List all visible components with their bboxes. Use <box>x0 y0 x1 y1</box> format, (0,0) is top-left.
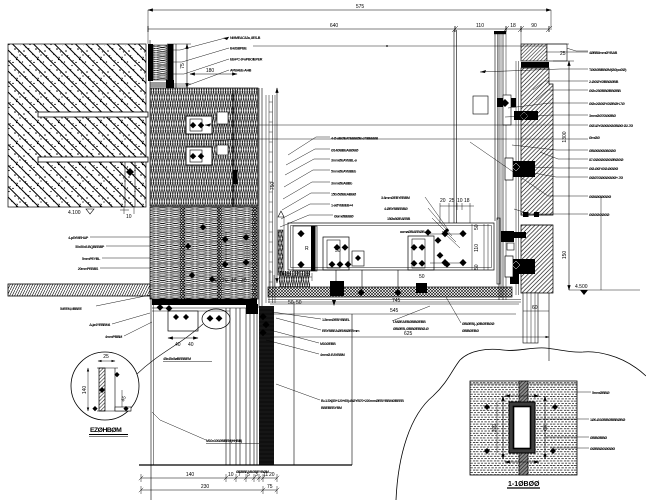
svg-text:575: 575 <box>356 4 365 10</box>
svg-text:10: 10 <box>126 214 132 220</box>
svg-text:18: 18 <box>510 23 516 29</box>
svg-text:ØBØEB, ØBBØEBBØ-Ø: ØBØEB, ØBBØEBBØ-Ø <box>393 327 429 331</box>
svg-text:4-ØBYBBEBBØ: 4-ØBYBBEBBØ <box>384 207 408 211</box>
svg-text:ØØBBØØØØØØ: ØØBBØØØØØØ <box>590 447 615 451</box>
svg-text:18: 18 <box>464 198 470 204</box>
svg-text:50: 50 <box>419 274 425 280</box>
svg-text:1Ø0-Ø2ØBBØBBBØBØ: 1Ø0-Ø2ØBBØBBBØBØ <box>590 418 625 422</box>
svg-text:180: 180 <box>206 68 215 74</box>
svg-text:BBEBEBYBM: BBEBEBYBM <box>321 406 342 410</box>
svg-text:25: 25 <box>285 272 291 278</box>
svg-text:4-Ø-øBØEAYEBBØB-ø7/BEEBB: 4-Ø-øBØEAYEBBØB-ø7/BEEBB <box>331 137 378 141</box>
svg-text:20: 20 <box>269 472 275 478</box>
svg-text:ØØx2ØØØYØØBØH-7Ø: ØØx2ØØØYØØBØH-7Ø <box>589 102 625 106</box>
svg-text:ØØØØØØØØ: ØØØØØØØØ <box>589 213 610 217</box>
svg-text:ØEBBEABØBEYBØM: ØEBBEABØBEYBØM <box>236 470 269 474</box>
svg-text:Δ-jø4YEBBM4: Δ-jø4YEBBM4 <box>89 323 111 327</box>
svg-text:545: 545 <box>390 308 399 314</box>
svg-text:68: 68 <box>543 425 549 431</box>
svg-text:ØØ1ØYØØØØØØBØØ Ø2-7Ø: ØØ1ØYØØØØØØBØØ Ø2-7Ø <box>589 124 633 128</box>
svg-text:3-6mmØEBYEBBM: 3-6mmØEBYEBBM <box>381 196 410 200</box>
svg-text:745: 745 <box>392 298 401 304</box>
svg-text:140: 140 <box>82 386 88 395</box>
svg-text:ØØØ7ØØØØØØØ+-7Ø: ØØØ7ØØØØØØØ+-7Ø <box>589 176 623 180</box>
svg-text:ØømØBBBØ: ØømØBBBØ <box>334 215 354 219</box>
svg-text:150: 150 <box>562 251 568 260</box>
svg-text:Ø14ØBBEABØBØ: Ø14ØBBEABØBØ <box>331 149 359 153</box>
svg-text:40: 40 <box>188 342 194 348</box>
svg-text:87.ØØØØØØØØBØØØ: 87.ØØØØØØØØBØØØ <box>589 158 624 162</box>
svg-text:LMØEAEBØBBØEBB: LMØEAEBØBBØEBB <box>393 320 426 324</box>
svg-text:25: 25 <box>449 198 455 204</box>
svg-text:EZØHBØM: EZØHBØM <box>90 427 122 434</box>
svg-text:EBYBBEAØEM8ØEEmm: EBYBBEAØEM8ØEEmm <box>322 329 360 333</box>
svg-text:230: 230 <box>201 484 210 490</box>
svg-text:5mmPEYBL: 5mmPEYBL <box>82 257 101 261</box>
svg-text:acmaØBAEBØB: acmaØBAEBØB <box>400 230 425 234</box>
svg-text:25: 25 <box>304 272 310 278</box>
svg-text:ØBØØØØØ8ØØØ: ØBØØØØØ8ØØØ <box>589 149 616 153</box>
svg-text:200: 200 <box>492 424 498 433</box>
svg-text:30: 30 <box>241 278 247 284</box>
svg-text:750: 750 <box>270 182 276 191</box>
svg-text:ØBØEB(--)ØBØEBØØ: ØBØEB(--)ØBØEBØØ <box>462 322 495 326</box>
svg-text:3mmØEAYBBL-ø: 3mmØEAYBBL-ø <box>331 159 358 163</box>
svg-text:10: 10 <box>228 472 234 478</box>
svg-text:20: 20 <box>440 198 446 204</box>
svg-text:20: 20 <box>222 278 228 284</box>
svg-text:M10ØEBB: M10ØEBB <box>320 342 336 346</box>
svg-text:50x50x5-BQBEBBP: 50x50x5-BQBEBBP <box>75 245 105 249</box>
svg-text:4-p8YMEHAP: 4-p8YMEHAP <box>68 236 89 240</box>
svg-text:4.500: 4.500 <box>575 284 588 290</box>
svg-text:25: 25 <box>103 354 109 360</box>
svg-text:15Øa5ØEAEBB: 15Øa5ØEAEBB <box>387 217 411 221</box>
svg-text:3mmØEABBb: 3mmØEABBb <box>331 182 353 186</box>
svg-text:40: 40 <box>212 278 218 284</box>
svg-text:NMMEAC8Ja, 8ES-B: NMMEAC8Ja, 8ES-B <box>230 36 261 40</box>
svg-text:625: 625 <box>404 331 413 337</box>
svg-text:10: 10 <box>457 198 463 204</box>
svg-text:1-øØYBBEB+4: 1-øØYBBEB+4 <box>331 204 354 208</box>
svg-text:B-BSBPBE: B-BSBPBE <box>230 47 247 51</box>
svg-text:3mmØØ7ØØØBØ: 3mmØØ7ØØØBØ <box>589 114 616 118</box>
svg-text:ØBBØBBØ: ØBBØBBØ <box>590 436 607 440</box>
svg-text:50: 50 <box>474 224 480 230</box>
svg-text:R: R <box>305 246 309 252</box>
svg-text:B=1.5X(85+120+85)=BØYB70+220mm: B=1.5X(85+120+85)=BØYB70+220mmØEBYBBMØBE… <box>321 399 404 403</box>
svg-text:50: 50 <box>296 300 302 306</box>
svg-text:40: 40 <box>231 278 237 284</box>
svg-text:150x5ØBEABBØ: 150x5ØBEABBØ <box>331 193 356 197</box>
svg-text:50: 50 <box>474 264 480 270</box>
svg-text:M10x100ØBBEM(HHBB): M10x100ØBBEM(HHBB) <box>206 439 243 443</box>
svg-text:2-ØØØYØBBØØBB: 2-ØØØYØBBØØBB <box>589 80 619 84</box>
svg-text:1.5mmØEBYBBEL: 1.5mmØEBYBBEL <box>322 318 351 322</box>
svg-text:5#EEM,#BBEE: 5#EEM,#BBEE <box>60 307 82 311</box>
svg-text:640: 640 <box>330 23 339 29</box>
svg-text:60: 60 <box>532 305 538 311</box>
svg-text:140: 140 <box>186 472 195 478</box>
svg-text:TØØØBBBØM(ØØpcØØ): TØØØBBBØM(ØØpcØØ) <box>589 68 627 72</box>
svg-text:4mmØ-EAYBBM: 4mmØ-EAYBBM <box>320 353 345 357</box>
svg-text:4mmPBBM: 4mmPBBM <box>105 335 122 339</box>
svg-text:ØmØØ: ØmØØ <box>589 136 600 140</box>
svg-text:4.100: 4.100 <box>68 210 81 216</box>
svg-text:110: 110 <box>474 244 480 252</box>
svg-text:ØØ8ØØØØØØ: ØØ8ØØØØØØ <box>589 195 611 199</box>
svg-text:ØBBØEBØ: ØBBØEBØ <box>462 329 479 333</box>
svg-text:50: 50 <box>335 248 341 254</box>
svg-text:110: 110 <box>476 23 484 29</box>
svg-text:45x45x5øBEBBEM: 45x45x5øBEBBEM <box>163 357 191 361</box>
svg-text:75: 75 <box>267 484 273 490</box>
svg-text:27: 27 <box>294 272 300 278</box>
svg-text:4ØBB8mmØYBAB: 4ØBB8mmØYBAB <box>589 51 618 55</box>
svg-text:1300: 1300 <box>562 131 568 142</box>
svg-text:APBAEE-AHB: APBAEE-AHB <box>230 69 252 73</box>
svg-text:50: 50 <box>288 300 294 306</box>
svg-text:EB-PC-8=aPBOIEPER: EB-PC-8=aPBOIEPER <box>230 58 263 62</box>
svg-text:ØØ-ØØYØØ.ØØØØ: ØØ-ØØYØØ.ØØØØ <box>589 167 618 171</box>
svg-text:5mmØEAYBBEb: 5mmØEAYBBEb <box>331 170 357 174</box>
svg-text:1-1ØBØØ: 1-1ØBØØ <box>508 481 540 488</box>
svg-text:90: 90 <box>531 23 537 29</box>
svg-text:5mmØBBØ: 5mmØBBØ <box>592 391 610 395</box>
svg-text:75: 75 <box>180 63 186 69</box>
svg-text:20mmPEBBS: 20mmPEBBS <box>78 267 99 271</box>
svg-text:ØØx25ØBBØBBØBB: ØØx25ØBBØBBØBB <box>589 89 621 93</box>
